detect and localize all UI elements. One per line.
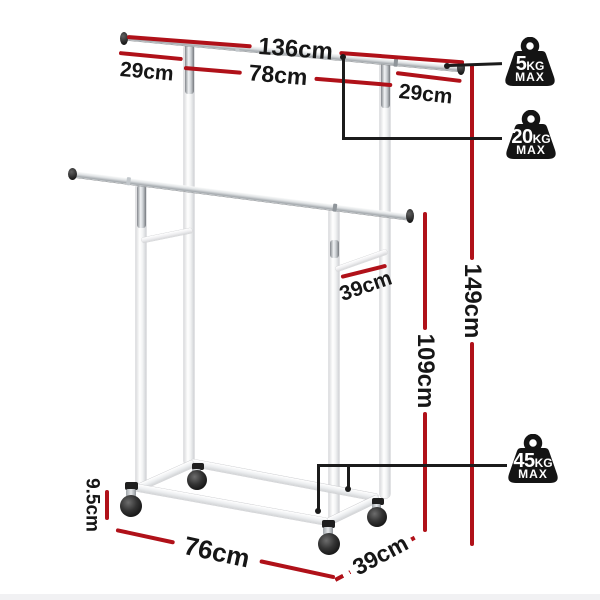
dim-line [116,528,175,545]
dim-label-right-overhang: 29cm [398,81,454,108]
connector-line-45kg-horizontal [317,464,507,467]
capacity-badge-20kg: 20KG MAX [501,110,561,164]
capacity-badge-45kg: 45KG MAX [503,434,563,488]
dim-line [259,559,336,579]
dim-line-overall-height-lower [470,342,474,546]
connector-line-20kg-horizontal [342,137,502,140]
connector-line-5kg [449,62,502,66]
front-right-post-chrome-sleeve [330,240,339,258]
dim-line-caster-height [105,490,109,520]
badge-max: MAX [503,468,563,480]
image-bottom-edge [0,594,600,600]
rear-left-post [184,44,194,465]
front-left-post-chrome-sleeve [137,185,146,228]
dim-base-depth: 39cm [330,527,420,590]
rail-telescope-joint [332,203,337,211]
dim-label-left-overhang: 29cm [119,59,174,85]
rail-end-cap [68,168,77,180]
connector-line-45kg-drop-right [347,464,350,488]
product-dimension-diagram: 136cm 29cm 78cm 29cm 39cm 149cm 109cm 9.… [0,0,600,600]
dim-label-base-depth: 39cm [345,529,417,582]
dim-label-lower-rail-height: 109cm [413,334,437,409]
dim-line-dashed [334,570,351,582]
front-hanging-rail [72,171,412,220]
dim-line-lower-rail-height-lower [423,412,427,532]
rail-joint [126,177,131,185]
dim-line [314,76,392,86]
connector-line-45kg-drop-left [317,464,320,510]
connector-dot [345,486,351,492]
dim-base-length: 76cm [113,517,337,590]
dim-line-overall-height-upper [470,64,474,260]
badge-max: MAX [501,144,561,156]
connector-line-20kg-vertical [342,58,345,139]
dim-line-lower-rail-height-upper [423,212,427,330]
connector-dot [315,508,321,514]
dim-line [127,35,252,48]
front-left-post [136,183,146,488]
dim-line-dashed [410,535,416,540]
dim-label-base-length: 76cm [172,530,262,574]
rail-end-cap [406,209,414,223]
dim-label-overall-height: 149cm [460,264,484,339]
dim-label-center-span: 78cm [241,61,315,90]
base-front-bar [135,484,327,525]
dim-line [184,66,242,75]
badge-max: MAX [500,71,560,83]
dim-label-caster-height: 9.5cm [83,478,102,532]
capacity-badge-5kg: 5KG MAX [500,37,560,91]
